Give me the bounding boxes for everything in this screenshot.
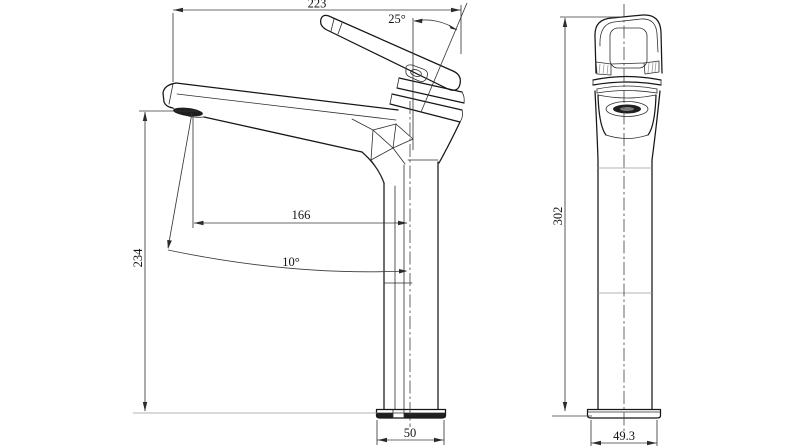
dimension-spout-height: 234 xyxy=(131,111,377,413)
collar-front xyxy=(593,77,661,94)
dim-label-handle-angle: 25° xyxy=(388,12,406,26)
side-view xyxy=(163,15,464,427)
dimension-spout-reach: 166 xyxy=(193,116,408,228)
faucet-technical-drawing: 223 25° 234 166 xyxy=(0,0,800,447)
base-flange-side xyxy=(377,410,446,419)
dim-label-spout-tilt: 10° xyxy=(282,255,300,269)
spout xyxy=(163,83,398,152)
body-column-side xyxy=(384,160,438,409)
handle-lever xyxy=(321,15,461,90)
dim-label-spout-height: 234 xyxy=(131,248,145,268)
front-view-dimensions: 302 49.3 xyxy=(551,17,657,446)
dim-label-spout-reach: 166 xyxy=(292,208,311,222)
dimension-base-width-side: 50 xyxy=(377,420,444,445)
body-junction xyxy=(352,78,464,183)
front-view xyxy=(588,4,663,433)
dim-label-overall-height: 302 xyxy=(551,207,565,226)
dimension-overall-width: 223 xyxy=(173,0,461,82)
dimension-spout-tilt: 10° xyxy=(167,113,407,274)
aerator-center xyxy=(620,107,634,111)
dim-label-base-width-front: 49.3 xyxy=(613,429,635,443)
spout-front xyxy=(598,95,656,139)
drawing-canvas: 223 25° 234 166 xyxy=(0,0,800,447)
handle-front xyxy=(595,15,662,75)
dim-label-overall-width: 223 xyxy=(308,0,327,11)
dim-label-base-width-side: 50 xyxy=(404,426,417,440)
